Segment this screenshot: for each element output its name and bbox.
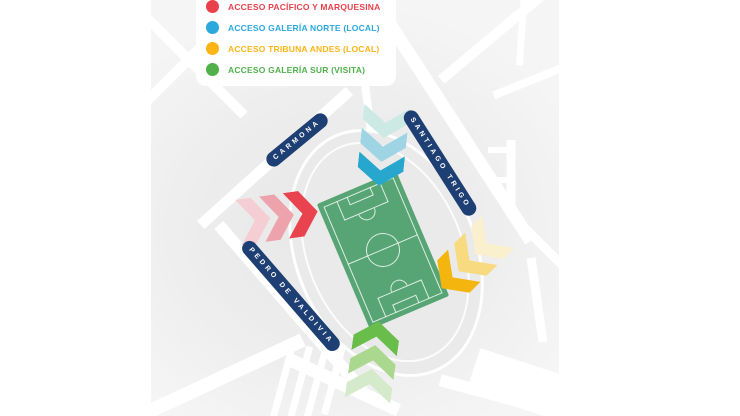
red-dot-icon — [206, 0, 219, 13]
access-arrow-north-icon — [356, 104, 410, 188]
street-segment — [492, 65, 559, 99]
street-segment — [466, 348, 559, 416]
access-arrow-south-icon — [345, 318, 402, 404]
legend-item-galeria-sur: ACCESO GALERÍA SUR (VISITA) — [206, 59, 396, 80]
yellow-dot-icon — [206, 42, 219, 55]
legend-item-tribuna-andes: ACCESO TRIBUNA ANDES (LOCAL) — [206, 38, 396, 59]
street-segment — [527, 257, 548, 342]
legend-item-label: ACCESO PACÍFICO Y MARQUESINA — [228, 2, 380, 12]
legend-item-label: ACCESO GALERÍA NORTE (LOCAL) — [228, 23, 380, 33]
legend-item-label: ACCESO GALERÍA SUR (VISITA) — [228, 65, 365, 75]
street-segment — [488, 147, 510, 153]
blue-dot-icon — [206, 21, 219, 34]
legend-item-label: ACCESO TRIBUNA ANDES (LOCAL) — [228, 44, 379, 54]
legend-item-galeria-norte: ACCESO GALERÍA NORTE (LOCAL) — [206, 17, 396, 38]
street-segment — [492, 177, 510, 183]
legend-item-pacifico: ACCESO PACÍFICO Y MARQUESINA — [206, 0, 396, 17]
green-dot-icon — [206, 63, 219, 76]
street-segment — [438, 0, 544, 84]
stadium-access-map-page: CARMONA SANTIAGO TRIGO PEDRO DE VALDIVIA… — [0, 0, 740, 416]
access-legend-panel: ACCESO PACÍFICO Y MARQUESINA ACCESO GALE… — [196, 0, 396, 86]
